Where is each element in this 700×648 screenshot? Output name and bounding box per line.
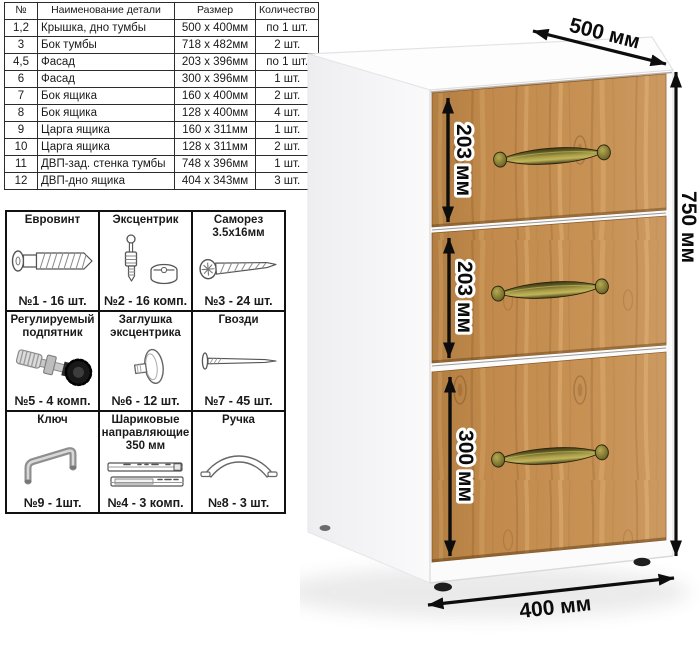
table-cell: 4,5: [5, 54, 38, 71]
table-cell: 300 х 396мм: [175, 71, 256, 88]
table-cell: 3: [5, 37, 38, 54]
table-row: 1,2Крышка, дно тумбы500 х 400ммпо 1 шт.: [5, 20, 319, 37]
table-cell: 6: [5, 71, 38, 88]
cabinet-illustration: 500 мм 750 мм 400 мм 203 мм 203 мм 300 м…: [300, 0, 700, 648]
hardware-count: №6 - 12 шт.: [111, 395, 179, 409]
table-row: 4,5Фасад203 х 396ммпо 1 шт.: [5, 54, 319, 71]
table-cell: 10: [5, 139, 38, 156]
cabinet-side-panel: [308, 54, 430, 583]
drawer1-height-label: 203 мм: [452, 124, 475, 196]
table-cell: Бок ящика: [38, 88, 175, 105]
hardware-title: Эксцентрик: [112, 214, 178, 227]
hardware-count: №5 - 4 комп.: [14, 395, 90, 409]
hardware-title: Заглушка эксцентрика: [101, 314, 190, 340]
hardware-cell-adjustable-foot: Регулируемый подпятник №5 - 4 комп.: [6, 311, 99, 411]
table-cell: 9: [5, 122, 38, 139]
table-cell: 11: [5, 156, 38, 173]
assembly-sheet: № Наименование детали Размер Количество …: [0, 0, 700, 648]
hardware-cell-self-tapping-screw: Саморез 3.5х16мм №3 - 24 шт.: [192, 211, 285, 311]
hardware-title: Регулируемый подпятник: [8, 314, 97, 340]
table-cell: Фасад: [38, 71, 175, 88]
cabinet-foot: [434, 583, 452, 592]
table-cell: 128 х 400мм: [175, 105, 256, 122]
hardware-count: №2 - 16 комп.: [104, 295, 187, 309]
header-name: Наименование детали: [38, 3, 175, 20]
table-cell: Фасад: [38, 54, 175, 71]
hardware-title: Шариковые направляющие 350 мм: [101, 414, 190, 453]
hardware-count: №3 - 24 шт.: [204, 295, 272, 309]
table-cell: 8: [5, 105, 38, 122]
cam-cover-icon: [104, 340, 188, 395]
table-cell: ДВП-дно ящика: [38, 173, 175, 190]
table-cell: 500 х 400мм: [175, 20, 256, 37]
hardware-cell-nails: Гвозди №7 - 45 шт.: [192, 311, 285, 411]
table-cell: 12: [5, 173, 38, 190]
hardware-title: Евровинт: [25, 214, 81, 227]
table-row: 7Бок ящика160 х 400мм2 шт.: [5, 88, 319, 105]
bow-handle-icon: [197, 427, 281, 497]
table-cell: 718 х 482мм: [175, 37, 256, 54]
table-cell: Царга ящика: [38, 139, 175, 156]
hardware-cell-ball-slides: Шариковые направляющие 350 мм №4 - 3 ком…: [99, 411, 192, 513]
table-cell: 160 х 400мм: [175, 88, 256, 105]
hardware-cell-eccentric: Эксцентрик №2 - 16 комп.: [99, 211, 192, 311]
hardware-count: №8 - 3 шт.: [208, 497, 269, 511]
hardware-title: Ручка: [222, 414, 255, 427]
table-row: 6Фасад300 х 396мм1 шт.: [5, 71, 319, 88]
parts-table: № Наименование детали Размер Количество …: [4, 2, 319, 190]
header-size: Размер: [175, 3, 256, 20]
hardware-cell-cam-cover: Заглушка эксцентрика №6 - 12 шт.: [99, 311, 192, 411]
table-cell: 404 х 343мм: [175, 173, 256, 190]
table-cell: Бок ящика: [38, 105, 175, 122]
hardware-grid: Евровинт №1 - 16 шт. Эксцентрик: [5, 210, 286, 514]
cabinet-foot: [634, 558, 651, 566]
nail-icon: [197, 327, 281, 395]
parts-table-body: 1,2Крышка, дно тумбы500 х 400ммпо 1 шт.3…: [5, 20, 319, 190]
table-row: 11ДВП-зад. стенка тумбы748 х 396мм1 шт.: [5, 156, 319, 173]
table-cell: 160 х 311мм: [175, 122, 256, 139]
table-cell: Царга ящика: [38, 122, 175, 139]
hardware-title: Гвозди: [218, 314, 258, 327]
table-cell: Бок тумбы: [38, 37, 175, 54]
table-cell: 748 х 396мм: [175, 156, 256, 173]
hardware-count: №4 - 3 комп.: [107, 497, 183, 511]
hardware-count: №7 - 45 шт.: [204, 395, 272, 409]
hardware-cell-euro-screw: Евровинт №1 - 16 шт.: [6, 211, 99, 311]
header-number: №: [5, 3, 38, 20]
table-cell: 203 х 396мм: [175, 54, 256, 71]
self-tapping-screw-icon: [197, 240, 281, 295]
hardware-title: Ключ: [37, 414, 67, 427]
eccentric-cam-icon: [104, 227, 188, 295]
hardware-cell-handle: Ручка №8 - 3 шт.: [192, 411, 285, 513]
height-dimension-label: 750 мм: [677, 191, 700, 263]
table-cell: 7: [5, 88, 38, 105]
table-cell: ДВП-зад. стенка тумбы: [38, 156, 175, 173]
table-row: 10Царга ящика128 х 311мм2 шт.: [5, 139, 319, 156]
drawer3-height-label: 300 мм: [454, 430, 477, 502]
table-cell: Крышка, дно тумбы: [38, 20, 175, 37]
cabinet-foot: [320, 525, 331, 531]
hex-key-icon: [11, 427, 95, 497]
table-row: 9Царга ящика160 х 311мм1 шт.: [5, 122, 319, 139]
hardware-title: Саморез 3.5х16мм: [194, 214, 283, 240]
drawer2-height-label: 203 мм: [453, 261, 476, 333]
parts-table-header: № Наименование детали Размер Количество: [5, 3, 319, 20]
table-header-row: № Наименование детали Размер Количество: [5, 3, 319, 20]
hardware-cell-key: Ключ №9 - 1шт.: [6, 411, 99, 513]
ball-slides-icon: [104, 453, 188, 497]
hardware-count: №9 - 1шт.: [24, 497, 82, 511]
hardware-count: №1 - 16 шт.: [18, 295, 86, 309]
table-row: 3Бок тумбы718 х 482мм2 шт.: [5, 37, 319, 54]
table-row: 12ДВП-дно ящика404 х 343мм3 шт.: [5, 173, 319, 190]
table-cell: 1,2: [5, 20, 38, 37]
table-row: 8Бок ящика128 х 400мм4 шт.: [5, 105, 319, 122]
adjustable-foot-icon: [11, 340, 95, 395]
euro-screw-icon: [11, 227, 95, 295]
table-cell: 128 х 311мм: [175, 139, 256, 156]
